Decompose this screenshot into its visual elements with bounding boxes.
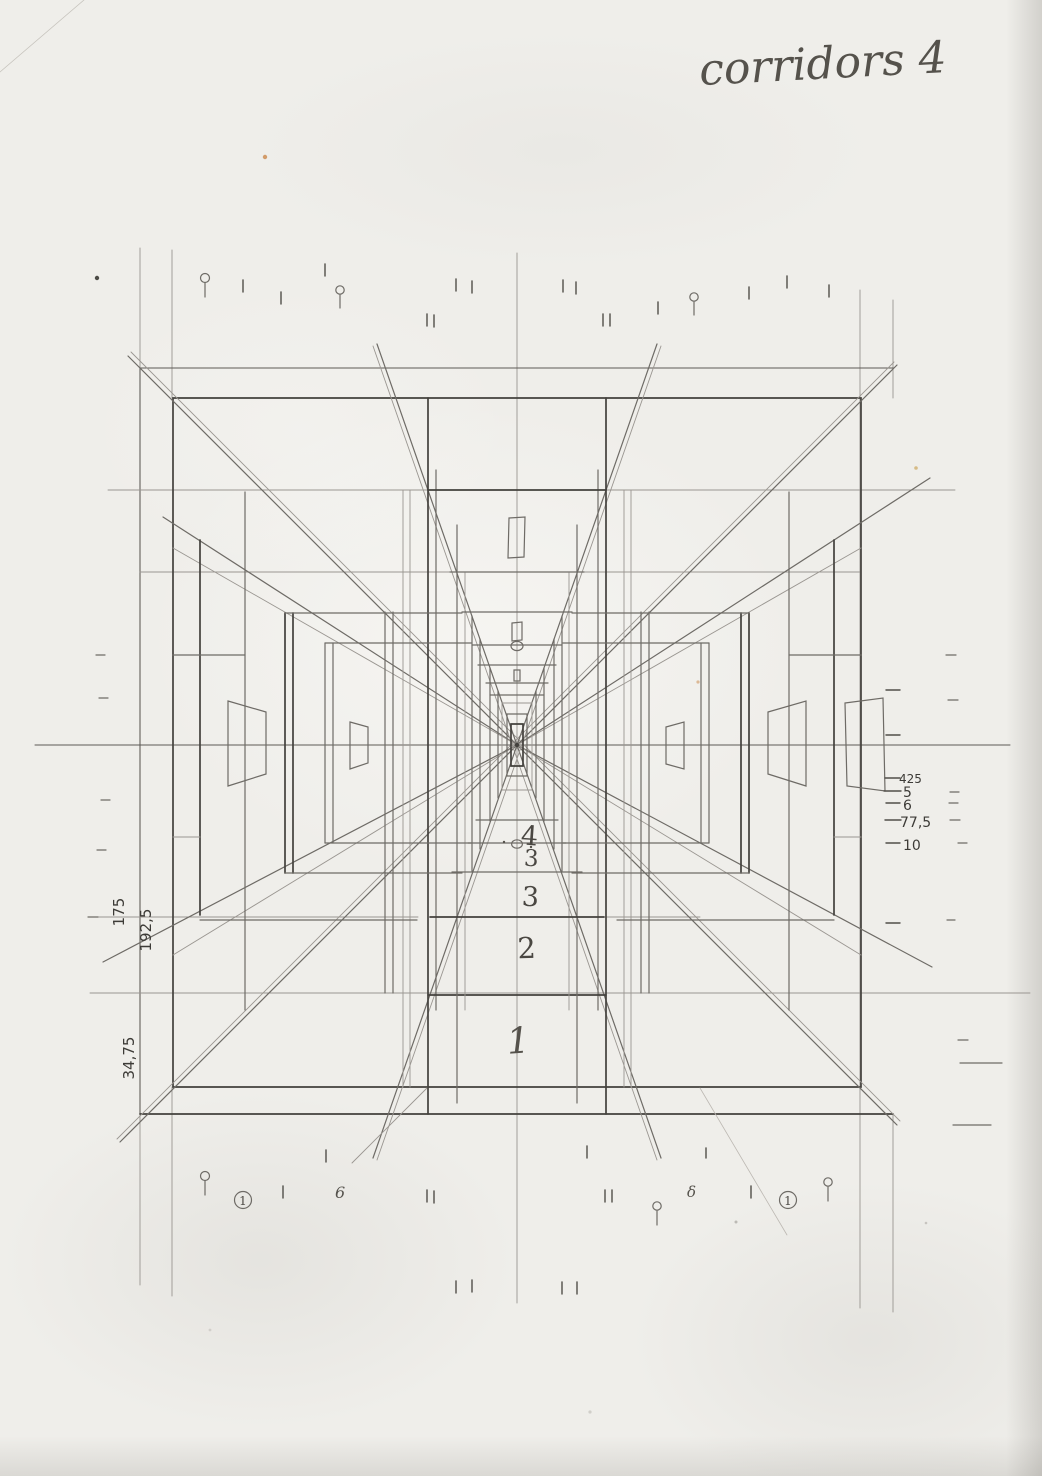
left-label-175: 175	[110, 898, 128, 927]
left-label-1925: 192,5	[137, 909, 155, 952]
axis-label-10: 10	[903, 838, 921, 854]
gray-speck	[735, 1221, 738, 1224]
floor-number-2: 2	[517, 931, 537, 966]
orange-speck	[914, 466, 918, 470]
floor-number-1: 1	[505, 1020, 531, 1062]
left-label-3475: 34,75	[120, 1037, 138, 1080]
paper-texture	[0, 0, 1042, 1476]
gray-speck	[925, 1222, 928, 1225]
gray-speck	[209, 1329, 212, 1332]
axis-label-6: 6	[903, 798, 912, 814]
circled-one-left: 1	[239, 1194, 247, 1208]
scanned-sketch-page: corridors 4	[0, 0, 1042, 1476]
six-mark: 6	[335, 1183, 345, 1202]
floor-marker-dot	[503, 841, 505, 843]
floor-number-3b: 3	[521, 882, 540, 914]
orange-speck	[696, 680, 699, 683]
ink-dot	[95, 276, 99, 280]
circled-one-right: 1	[784, 1194, 792, 1208]
corridor-sketch: corridors 4	[0, 0, 1042, 1476]
paper-edge-shadow-bottom	[0, 1436, 1042, 1476]
axis-label-425: 425	[899, 772, 922, 786]
paper-shade	[0, 1090, 520, 1430]
floor-number-3a: 3	[523, 846, 539, 873]
gray-speck	[588, 1410, 591, 1413]
paper-edge-shadow-right	[1006, 0, 1042, 1476]
delta-mark: δ	[687, 1183, 696, 1201]
paper-highlight	[80, 280, 520, 580]
vanishing-point	[515, 743, 519, 747]
orange-speck	[263, 155, 267, 159]
axis-label-775: 77,5	[900, 815, 931, 831]
